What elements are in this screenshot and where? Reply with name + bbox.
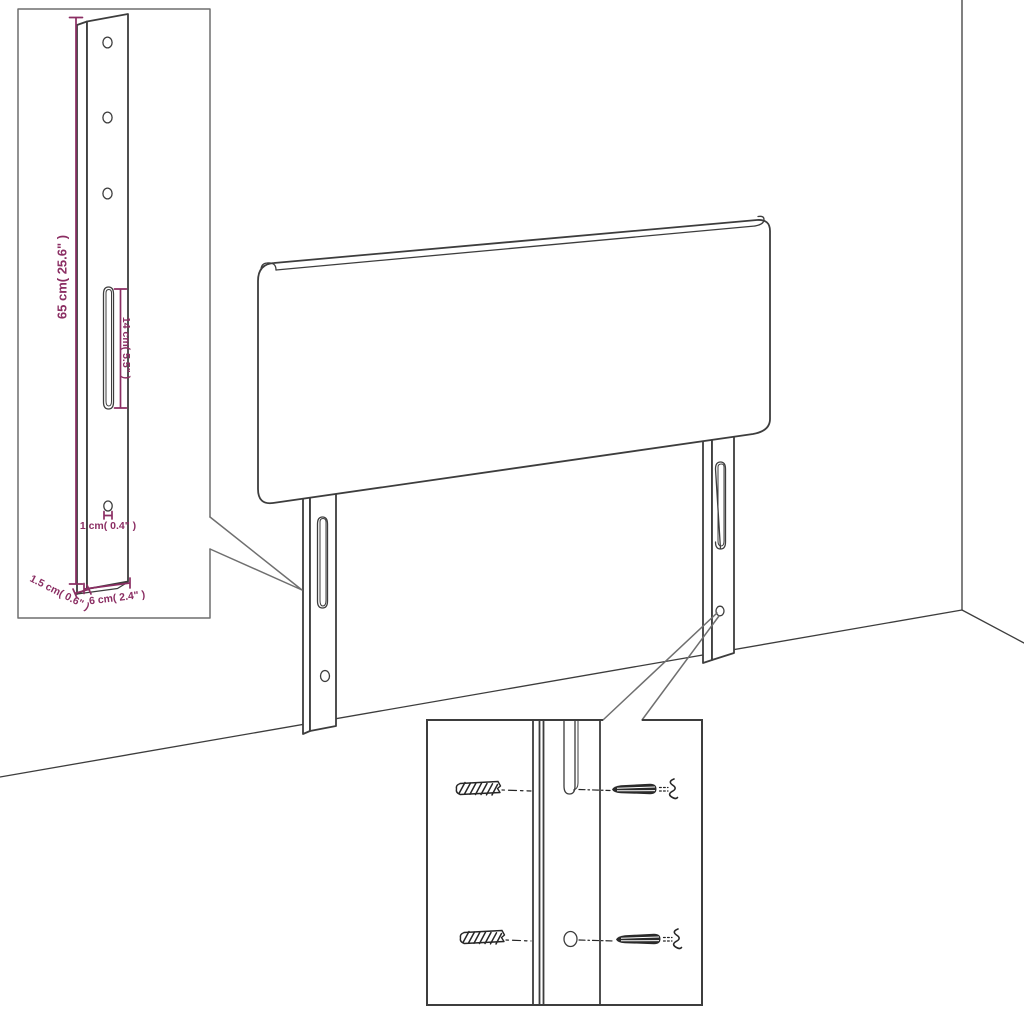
leg-detail-callout-wedge: [210, 517, 302, 590]
wall-plug-icon: [456, 782, 500, 796]
right-leg: [703, 415, 734, 663]
alignment-dash-plug-top: [502, 790, 531, 791]
hardware-detail-leg: [533, 721, 600, 1004]
height-dimension-label: 65 cm( 25.6" ): [55, 235, 70, 319]
wall-plug-icon: [460, 931, 504, 945]
alignment-dash-screw-bottom: [579, 940, 614, 941]
alignment-dash-plug-bottom: [506, 940, 531, 941]
right-leg-front-face: [712, 415, 734, 660]
floor-line-left: [0, 610, 962, 777]
headboard-front-face: [258, 220, 770, 503]
headboard-dimension-diagram: 65 cm( 25.6" ) 14 cm( 5.5" ) 1 cm( 0.4" …: [0, 0, 1024, 1024]
detail-leg-front-face: [87, 14, 128, 589]
hardware-leg-slot-inner: [574, 721, 579, 790]
screw-icon: [612, 779, 678, 799]
slot-dimension-label: 14 cm( 5.5" ): [120, 317, 132, 379]
hardware-leg-hole: [564, 932, 577, 947]
hardware-leg-slot: [564, 721, 575, 794]
left-leg: [303, 465, 336, 734]
hardware-leg-edges: [533, 721, 600, 1004]
left-leg-side-face: [303, 468, 310, 734]
detail-leg-side-face: [77, 22, 87, 595]
hardware-callout-wedge: [603, 613, 719, 720]
alignment-dash-screw-top: [579, 790, 610, 791]
diagram-canvas: 65 cm( 25.6" ) 14 cm( 5.5" ) 1 cm( 0.4" …: [0, 0, 1024, 1024]
hardware-inset: [427, 613, 719, 1005]
headboard-panel: [258, 216, 770, 503]
floor-line-right: [962, 610, 1024, 643]
hole-dimension-label: 1 cm( 0.4" ): [80, 520, 136, 532]
left-leg-front-face: [310, 465, 336, 731]
screw-icon: [616, 929, 682, 949]
